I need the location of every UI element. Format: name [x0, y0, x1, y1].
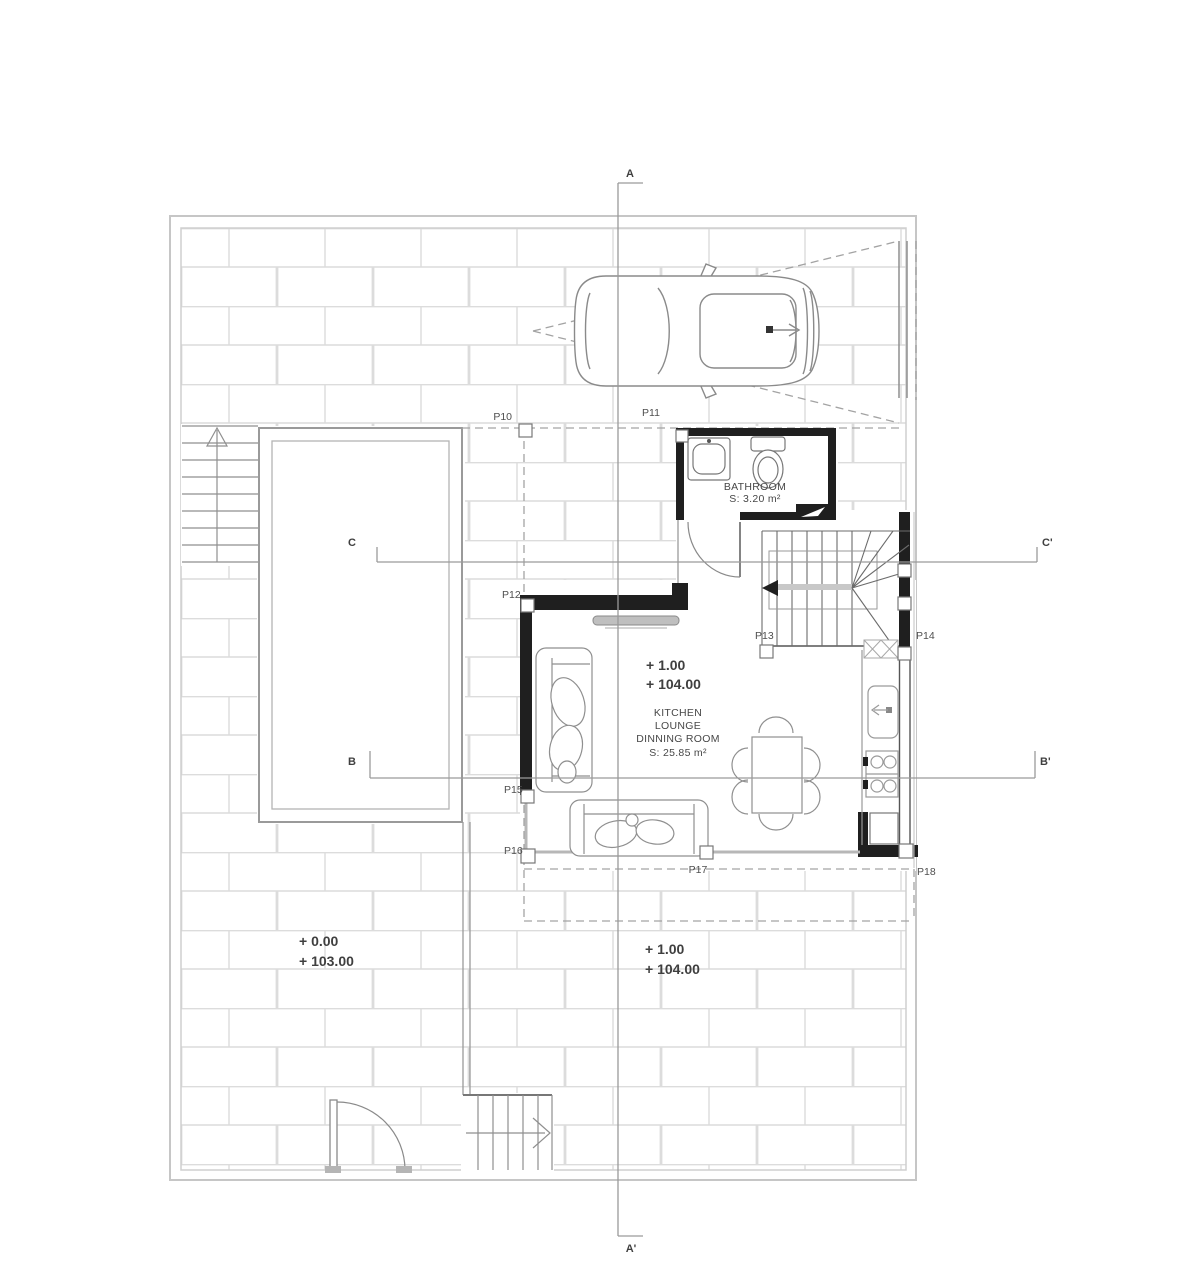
- marker-p10: [519, 424, 532, 437]
- marker-p11: [676, 430, 688, 442]
- main-room-name-1: KITCHEN: [654, 707, 702, 719]
- bathroom-sink: [688, 438, 730, 480]
- opening-label-p10: P10: [493, 411, 512, 423]
- section-label-a-bottom: A': [626, 1243, 637, 1255]
- bathroom-bottom-wall: [740, 512, 798, 520]
- marker-p13: [760, 645, 773, 658]
- opening-label-p12: P12: [502, 589, 521, 601]
- car-body: [575, 276, 820, 386]
- bathroom-area: S: 3.20 m²: [729, 493, 781, 505]
- base-cabinet: [870, 813, 898, 844]
- opening-label-p11: P11: [642, 407, 660, 419]
- level-terrace-absolute: + 104.00: [645, 961, 700, 977]
- east-wall-seg1: [899, 512, 910, 564]
- marker-p15: [521, 790, 534, 803]
- floor-grate: [864, 640, 898, 658]
- opening-label-p18: P18: [917, 866, 936, 878]
- stair-window-2: [898, 597, 911, 610]
- section-label-c-right: C': [1042, 537, 1053, 549]
- marker-p18: [899, 844, 913, 858]
- section-label-b-right: B': [1040, 756, 1051, 768]
- sofa-horizontal: [570, 800, 708, 856]
- east-wall-seg3: [899, 610, 910, 648]
- level-garden-absolute: + 103.00: [299, 953, 354, 969]
- level-terrace-relative: + 1.00: [645, 941, 685, 957]
- marker-p14: [898, 647, 911, 660]
- main-room-name-2: LOUNGE: [655, 720, 701, 732]
- kitchen-sink: [868, 686, 898, 738]
- stove: [863, 751, 898, 797]
- stair-handrail: [770, 584, 852, 590]
- cushion: [558, 761, 576, 783]
- main-room-area: S: 25.85 m²: [649, 747, 707, 759]
- bathroom-name: BATHROOM: [724, 481, 786, 493]
- marker-p12: [521, 599, 534, 612]
- stair-window-1: [898, 564, 911, 577]
- level-interior-absolute: + 104.00: [646, 676, 701, 692]
- pillow: [626, 814, 638, 826]
- east-wall-seg2: [899, 576, 910, 598]
- sofa-vertical: [536, 648, 592, 792]
- car: [575, 264, 820, 398]
- dining-table: [752, 737, 802, 813]
- pool: [259, 428, 462, 822]
- car-arrow-base: [766, 326, 773, 333]
- level-interior-relative: + 1.00: [646, 657, 686, 673]
- floor-plan-drawing: A A' C C' B B' P10 P11 P12 P13 P14 P15 P…: [0, 0, 1200, 1267]
- section-label-a-top: A: [626, 168, 634, 180]
- level-garden-relative: + 0.00: [299, 933, 339, 949]
- opening-label-p16: P16: [504, 845, 523, 857]
- marker-p16: [521, 849, 535, 863]
- floor-plan-canvas: A A' C C' B B' P10 P11 P12 P13 P14 P15 P…: [0, 0, 1200, 1267]
- section-label-c-left: C: [348, 537, 356, 549]
- gate-leaf: [330, 1100, 337, 1170]
- opening-label-p13: P13: [755, 630, 774, 642]
- opening-label-p14: P14: [916, 630, 935, 642]
- section-label-b-left: B: [348, 756, 356, 768]
- main-room-name-3: DINNING ROOM: [636, 733, 720, 745]
- marker-p17: [700, 846, 713, 859]
- opening-label-p17: P17: [689, 864, 708, 876]
- opening-label-p15: P15: [504, 784, 523, 796]
